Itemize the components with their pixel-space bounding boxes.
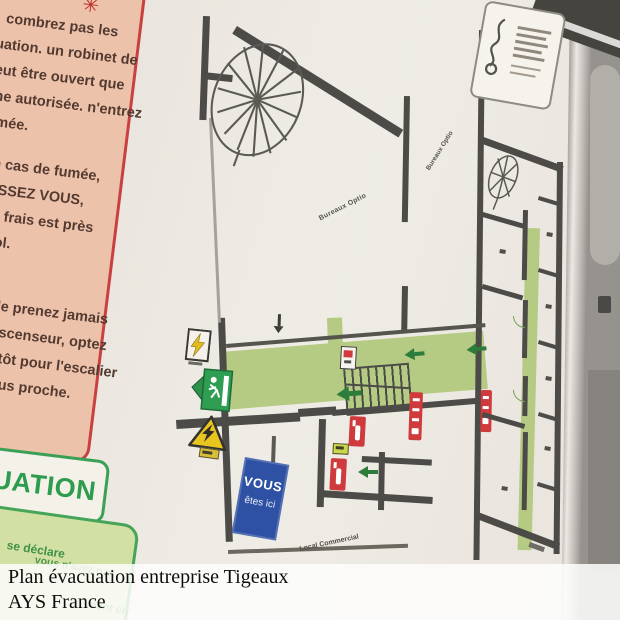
arrow-head bbox=[466, 343, 477, 356]
legend-text-line bbox=[516, 33, 546, 41]
arrow-head bbox=[358, 466, 368, 478]
warning-label-text bbox=[202, 450, 212, 454]
hose-symbol bbox=[412, 428, 419, 434]
wall-shadow bbox=[588, 370, 620, 570]
door-mark bbox=[544, 446, 551, 451]
spiral-staircase-icon bbox=[196, 30, 324, 176]
evacuation-arrow-icon bbox=[466, 342, 487, 356]
hose-text bbox=[412, 408, 419, 411]
wall-segment bbox=[522, 300, 528, 358]
you-are-here-line2: êtes ici bbox=[237, 493, 283, 512]
hose-text bbox=[413, 398, 420, 401]
safety-mini-sign bbox=[332, 443, 349, 455]
instructions-block-1: combrez pas les uation. un robinet de pe… bbox=[0, 4, 153, 153]
arrow-shaft bbox=[368, 470, 378, 474]
photo-evacuation-plan: ✳ combrez pas les uation. un robinet de … bbox=[0, 0, 620, 620]
warning-triangle-icon bbox=[187, 412, 232, 453]
caption-title: Plan évacuation entreprise Tigeaux bbox=[8, 566, 289, 589]
arrow-head bbox=[336, 386, 350, 402]
instructions-block-3: Ne prenez jamais l'ascenseur, optez plut… bbox=[0, 292, 125, 412]
mini-sign-text bbox=[336, 446, 344, 449]
hose-text bbox=[483, 396, 489, 399]
you-are-here-line1: VOUS bbox=[240, 473, 287, 496]
hose-text bbox=[412, 418, 419, 421]
legend-text-line bbox=[511, 64, 541, 72]
fire-hose-icon bbox=[408, 392, 423, 440]
hose-text bbox=[483, 406, 489, 409]
alarm-icon bbox=[340, 346, 357, 370]
evacuation-header: ACUATION bbox=[0, 459, 106, 508]
alarm-text bbox=[344, 360, 351, 363]
door-mark bbox=[545, 376, 552, 381]
legend-text-line bbox=[510, 71, 536, 78]
wall-highlight bbox=[590, 65, 620, 265]
wall-fixture bbox=[598, 296, 611, 313]
evacuation-arrow-icon bbox=[404, 347, 425, 361]
down-arrow-icon bbox=[273, 314, 284, 333]
arrow-shaft bbox=[278, 314, 281, 326]
extinguisher-nozzle bbox=[333, 462, 336, 468]
door-mark bbox=[501, 486, 508, 491]
instructions-block-2: n cas de fumée, AISSEZ VOUS, air frais e… bbox=[0, 150, 102, 267]
legend-text-line bbox=[513, 54, 545, 62]
legend-box bbox=[469, 0, 567, 111]
arrow-head bbox=[273, 326, 283, 333]
door-mark bbox=[546, 232, 553, 237]
fire-extinguisher-icon bbox=[329, 458, 347, 491]
extinguisher-body bbox=[336, 468, 342, 484]
legend-text-line bbox=[514, 47, 542, 54]
exit-man-icon bbox=[189, 364, 235, 415]
caption-subtitle: AYS France bbox=[8, 591, 106, 614]
door-mark bbox=[545, 304, 552, 309]
door-mark bbox=[499, 249, 506, 254]
legend-text-lines bbox=[509, 26, 554, 84]
arrow-shaft bbox=[414, 351, 424, 356]
evacuation-arrow-icon bbox=[336, 385, 362, 402]
extinguisher-nozzle bbox=[352, 420, 355, 426]
arrow-shaft bbox=[476, 346, 486, 351]
hose-symbol bbox=[482, 418, 488, 424]
arrow-shaft bbox=[349, 390, 362, 396]
extinguisher-body bbox=[355, 425, 361, 440]
alarm-button bbox=[343, 350, 352, 357]
evacuation-arrow-icon bbox=[358, 466, 378, 478]
arrow-head bbox=[404, 348, 415, 361]
wall-segment bbox=[378, 452, 385, 510]
wall-segment bbox=[401, 286, 408, 332]
electrical-hazard-icon bbox=[184, 328, 212, 368]
fire-extinguisher-icon bbox=[348, 416, 366, 447]
